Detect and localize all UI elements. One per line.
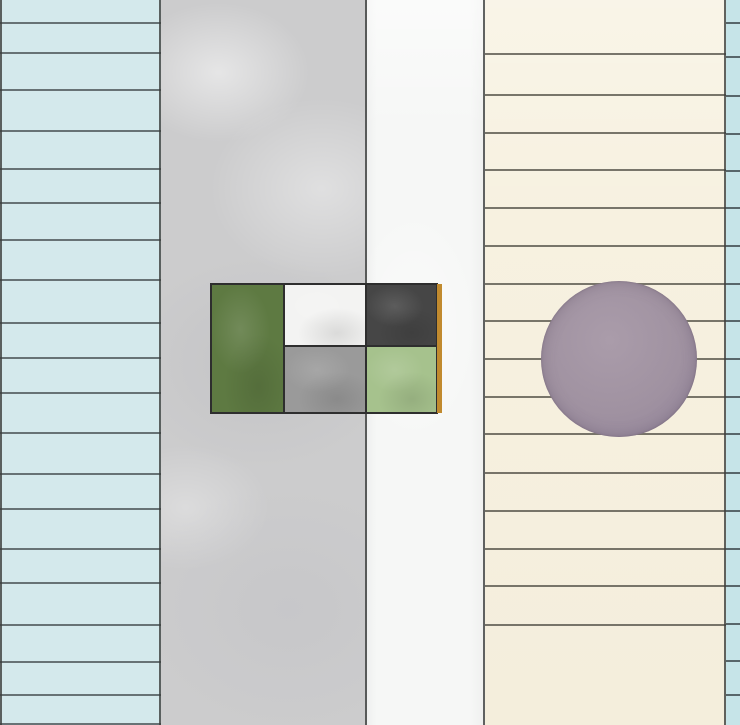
rule-line xyxy=(0,432,161,434)
rule-line xyxy=(485,548,726,550)
rule-line xyxy=(485,169,726,171)
rule-line xyxy=(0,89,161,91)
rule-line xyxy=(485,472,726,474)
stripe-blue-right xyxy=(726,0,740,725)
accent-strip-orange xyxy=(437,284,442,413)
rule-line xyxy=(0,168,161,170)
rule-line xyxy=(0,508,161,510)
rule-line xyxy=(0,22,161,24)
cell-light-green xyxy=(366,346,437,413)
rule-line xyxy=(485,585,726,587)
rule-line xyxy=(485,510,726,512)
rule-line xyxy=(0,661,161,663)
rule-line xyxy=(485,132,726,134)
cell-charcoal xyxy=(366,284,437,346)
rule-line xyxy=(726,95,740,97)
circle-mauve xyxy=(541,281,697,437)
column-boundary xyxy=(0,0,2,725)
column-boundary xyxy=(724,0,726,725)
column-boundary xyxy=(159,0,161,725)
cell-dark-green xyxy=(211,284,284,413)
rule-line xyxy=(0,202,161,204)
rule-line xyxy=(0,239,161,241)
rule-line xyxy=(0,322,161,324)
rule-line xyxy=(0,548,161,550)
rule-line xyxy=(726,623,740,625)
rule-line xyxy=(485,207,726,209)
rule-line xyxy=(726,283,740,285)
rule-line xyxy=(485,53,726,55)
rule-line xyxy=(0,279,161,281)
rule-line xyxy=(726,585,740,587)
rule-line xyxy=(0,582,161,584)
rule-line xyxy=(726,320,740,322)
rule-line xyxy=(0,392,161,394)
rule-line xyxy=(726,207,740,209)
rule-line xyxy=(726,56,740,58)
rule-line xyxy=(0,473,161,475)
rule-line xyxy=(726,358,740,360)
rule-line xyxy=(726,396,740,398)
rule-line xyxy=(726,694,740,696)
artwork-canvas xyxy=(0,0,740,725)
cell-gray xyxy=(284,346,366,413)
rule-line xyxy=(726,548,740,550)
rule-line xyxy=(726,245,740,247)
rule-line xyxy=(726,133,740,135)
column-boundary xyxy=(483,0,485,725)
color-block xyxy=(211,284,437,413)
cell-white xyxy=(284,284,366,346)
rule-line xyxy=(0,130,161,132)
rule-line xyxy=(726,660,740,662)
rule-line xyxy=(726,472,740,474)
rule-line xyxy=(0,357,161,359)
rule-line xyxy=(726,170,740,172)
rule-line xyxy=(726,22,740,24)
stripe-blue-left xyxy=(0,0,161,725)
rule-line xyxy=(0,52,161,54)
rule-line xyxy=(0,624,161,626)
rule-line xyxy=(726,433,740,435)
rule-line xyxy=(485,624,726,626)
rule-line xyxy=(0,694,161,696)
rule-line xyxy=(726,510,740,512)
rule-line xyxy=(485,94,726,96)
rule-line xyxy=(485,245,726,247)
